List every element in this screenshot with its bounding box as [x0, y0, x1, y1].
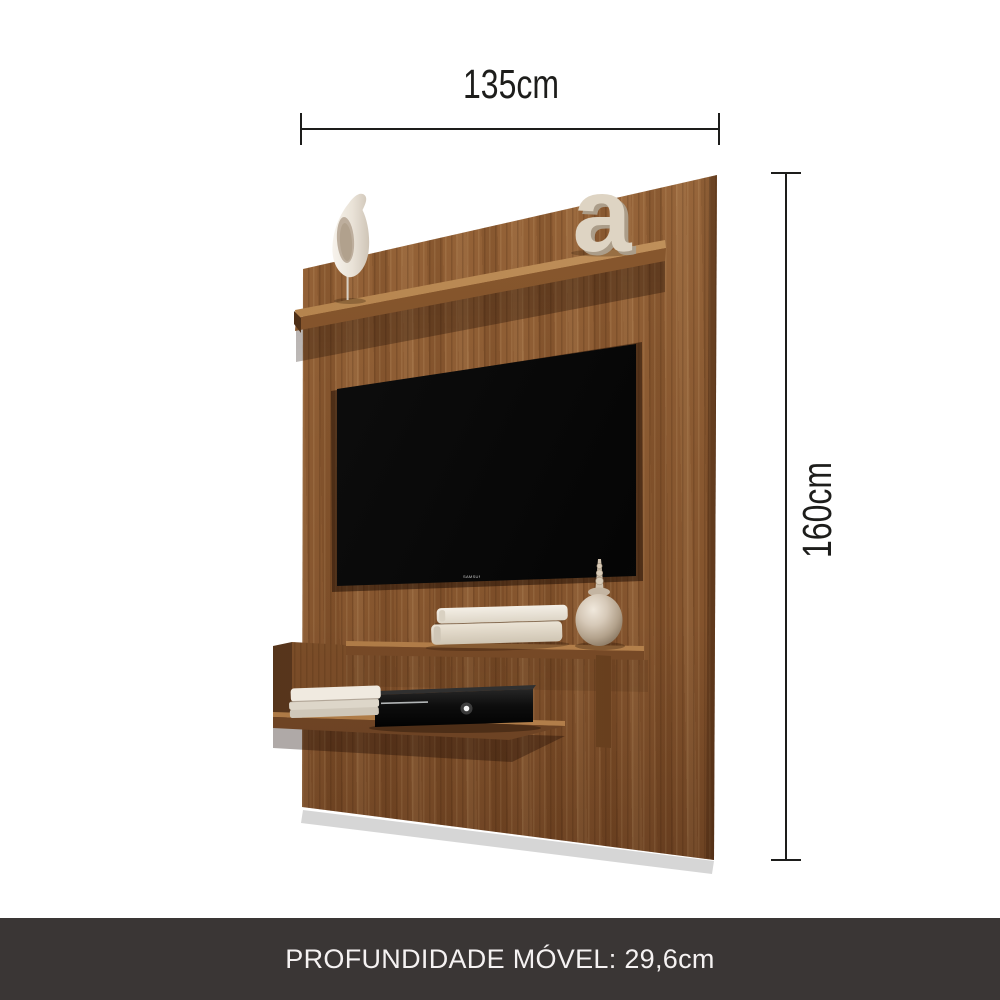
book-lower-pages: [434, 626, 441, 643]
depth-info-bar: PROFUNDIDADE MÓVEL: 29,6cm: [0, 918, 1000, 1000]
decor-objects: a a: [0, 0, 1000, 1000]
jar-bead-1: [597, 563, 602, 568]
height-dimension-tick-bottom: [771, 859, 801, 861]
decor-jar: [575, 559, 625, 650]
letter-a-face: a: [573, 156, 633, 274]
height-dimension-line: [785, 173, 787, 861]
vase-shadow: [334, 298, 366, 304]
decor-letter-a: a a: [571, 156, 637, 278]
product-dimension-image: SAMSUNG: [0, 0, 1000, 1000]
books-stack-bottom: [289, 685, 382, 718]
height-dimension-label: 160cm: [793, 393, 841, 627]
width-dimension-tick-left: [300, 113, 302, 145]
decor-vase: [332, 194, 369, 304]
books-stack-middle: [425, 605, 570, 653]
jar-body: [576, 594, 623, 646]
jar-bead-3: [596, 577, 604, 585]
depth-info-text: PROFUNDIDADE MÓVEL: 29,6cm: [285, 944, 714, 975]
width-dimension-line: [301, 128, 719, 130]
console-front: [375, 689, 533, 727]
game-console: [369, 685, 541, 733]
vase-stem: [347, 276, 349, 300]
book-lower: [431, 621, 563, 645]
book-upper-pages: [439, 610, 445, 622]
width-dimension-label: 135cm: [355, 64, 667, 105]
xbox-logo-icon: [464, 706, 470, 712]
width-dimension-tick-right: [718, 113, 720, 145]
height-dimension-tick-top: [771, 172, 801, 174]
jar-bead-2: [596, 570, 602, 576]
